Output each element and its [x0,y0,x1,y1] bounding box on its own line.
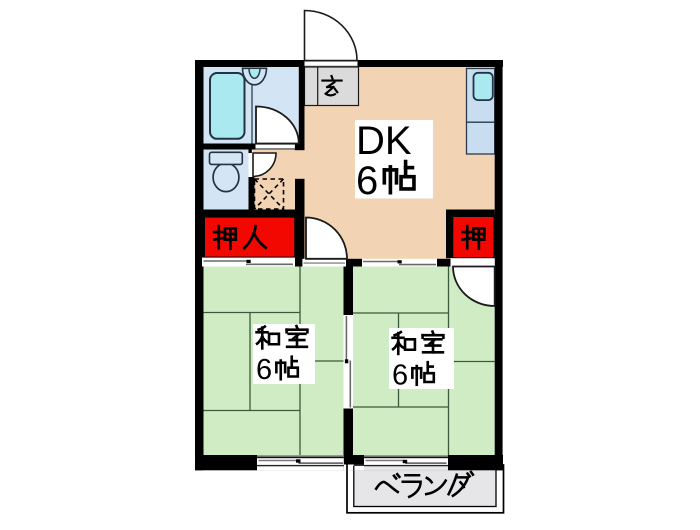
svg-text:6: 6 [256,354,272,386]
svg-text:DK: DK [356,119,412,163]
svg-text:6: 6 [392,360,408,392]
svg-text:6: 6 [356,159,378,203]
